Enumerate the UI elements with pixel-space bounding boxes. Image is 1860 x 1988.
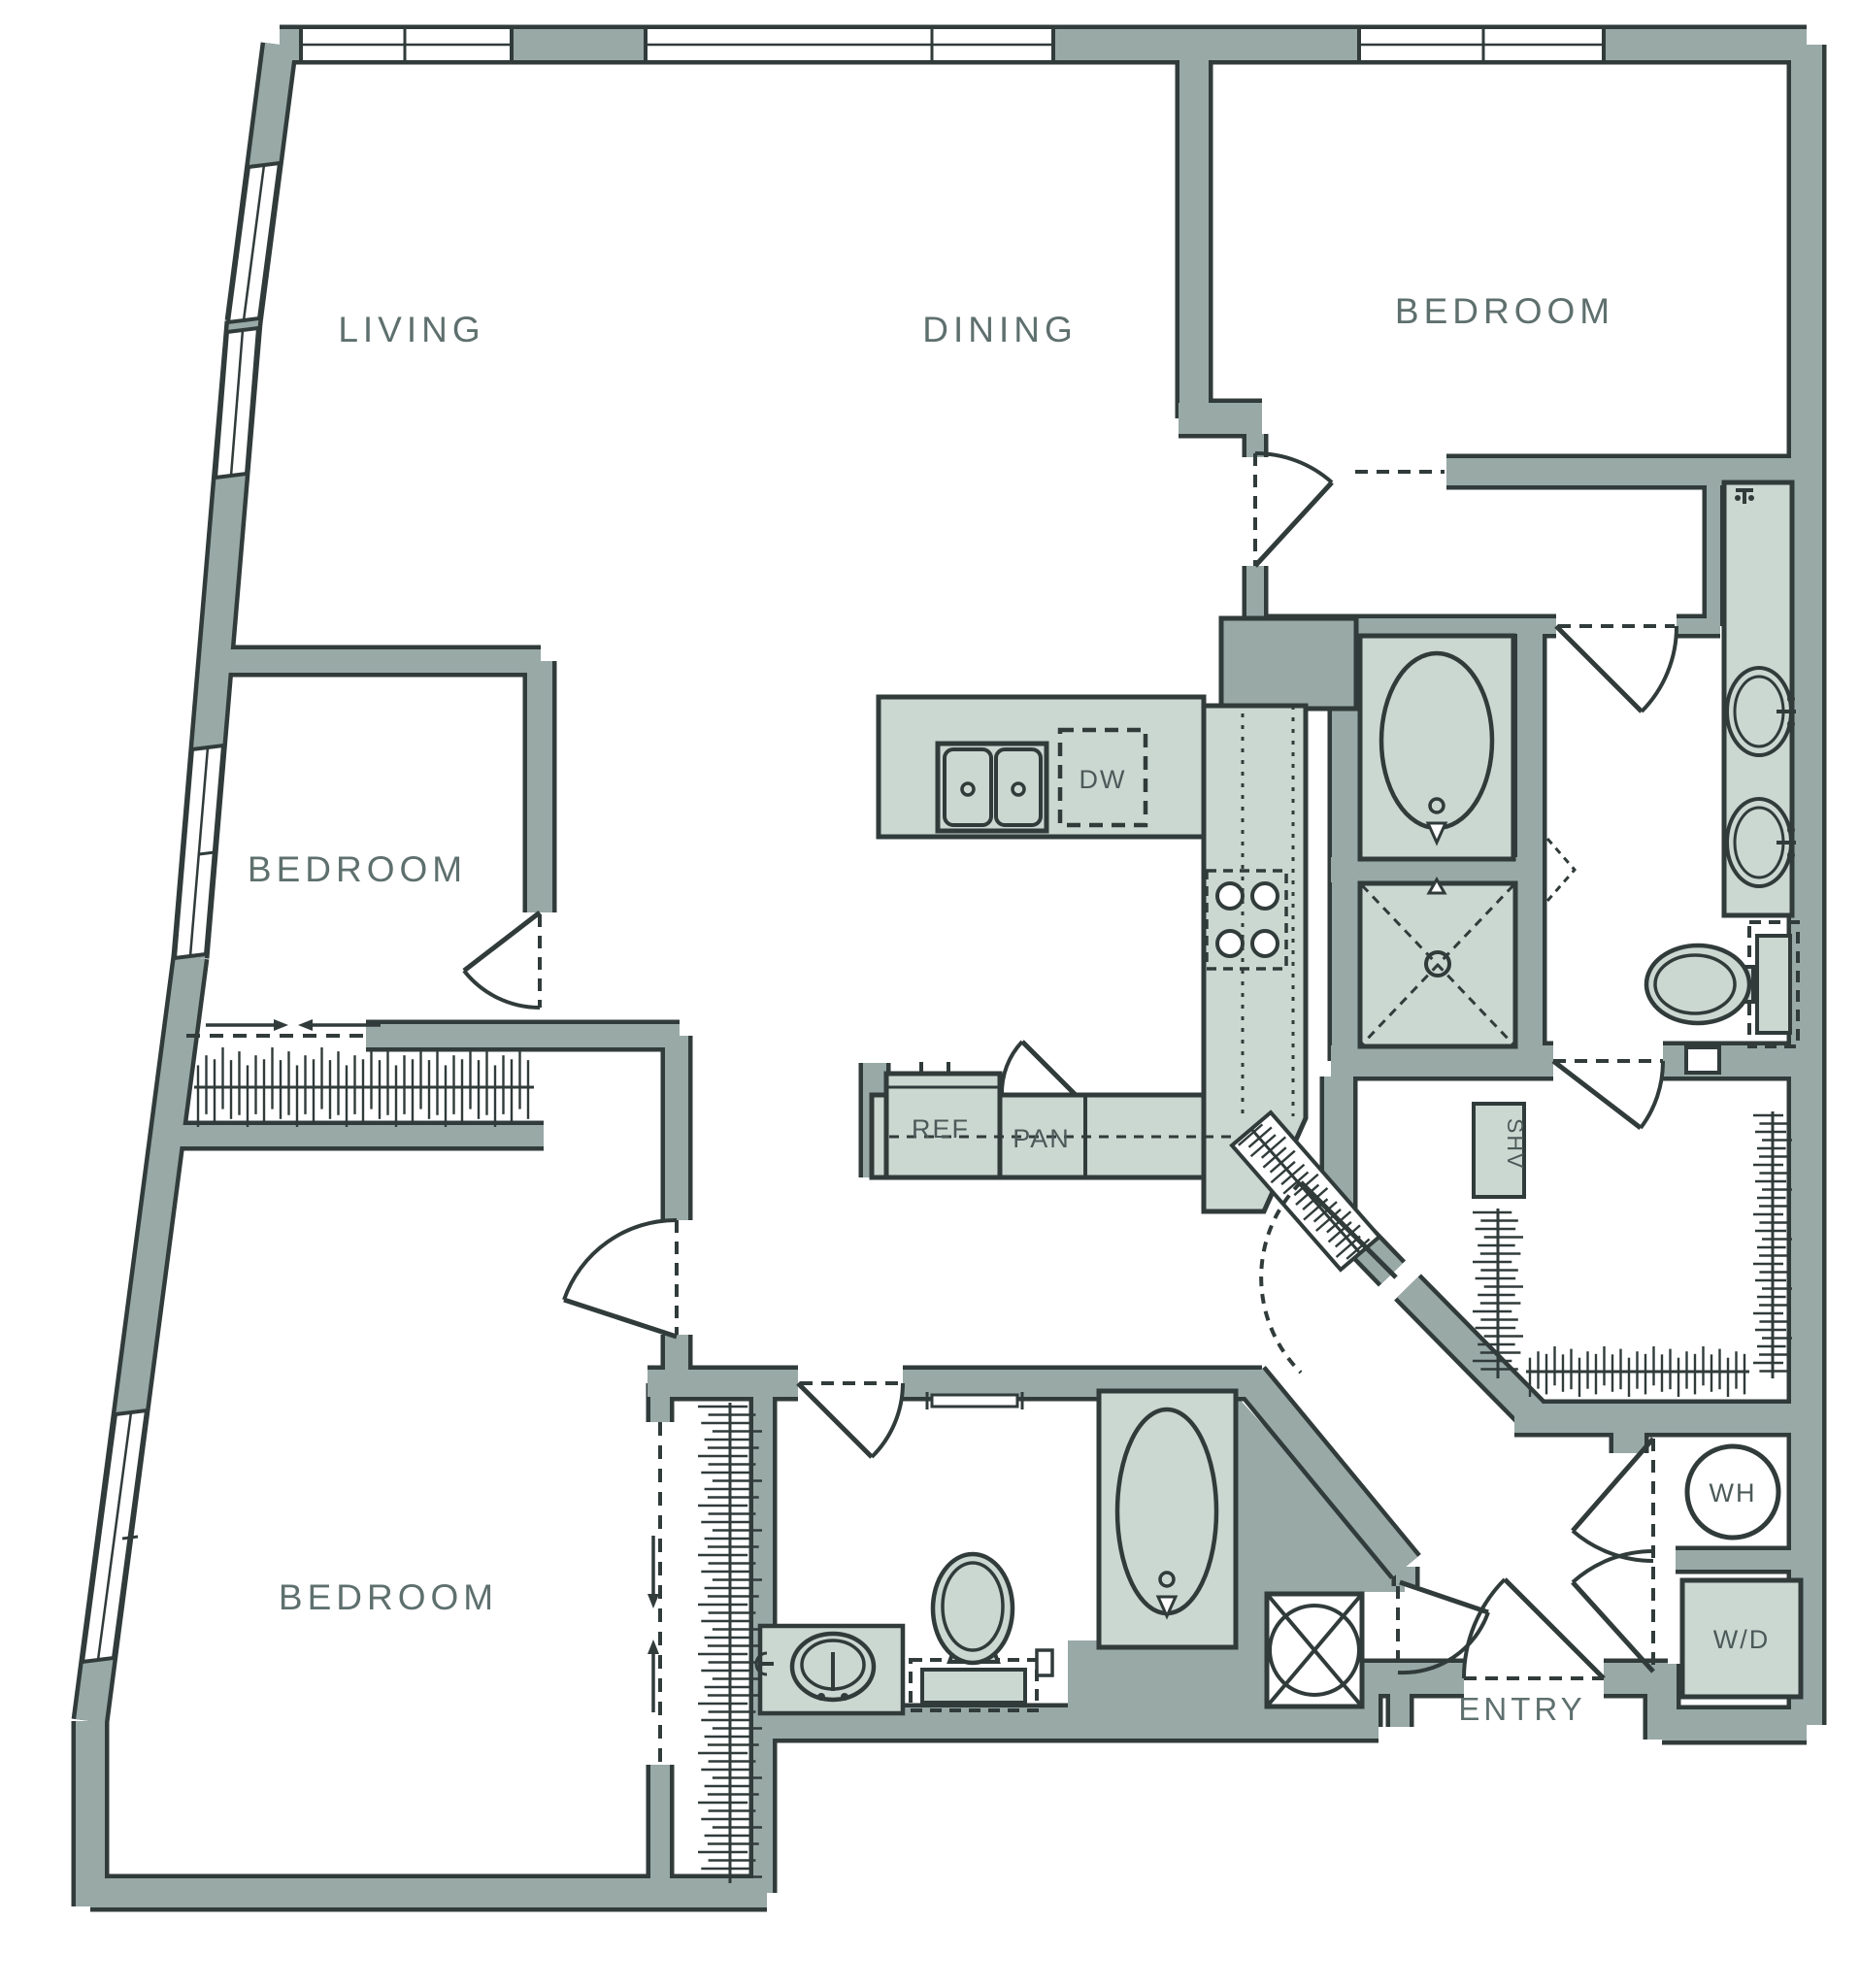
bedroom-bottom-left-label: BEDROOM: [279, 1577, 498, 1617]
dining-label: DINING: [922, 310, 1078, 349]
entry-label: ENTRY: [1458, 1691, 1585, 1727]
washer-dryer-label: W/D: [1713, 1625, 1770, 1654]
floor-plan-sheet: LIVING DINING BEDROOM BEDROOM BEDROOM EN…: [0, 0, 1860, 1988]
dishwasher-label: DW: [1079, 765, 1127, 794]
shelves-label: SHV: [1503, 1118, 1528, 1170]
water-heater-label: WH: [1710, 1478, 1757, 1508]
pantry-label: PAN: [1013, 1124, 1071, 1153]
floor-plan-drawing: LIVING DINING BEDROOM BEDROOM BEDROOM EN…: [0, 0, 1860, 1988]
living-label: LIVING: [338, 310, 484, 349]
bedroom-middle-left-label: BEDROOM: [248, 849, 467, 889]
bedroom-top-right-label: BEDROOM: [1395, 291, 1614, 331]
refrigerator-label: REF: [912, 1114, 970, 1143]
